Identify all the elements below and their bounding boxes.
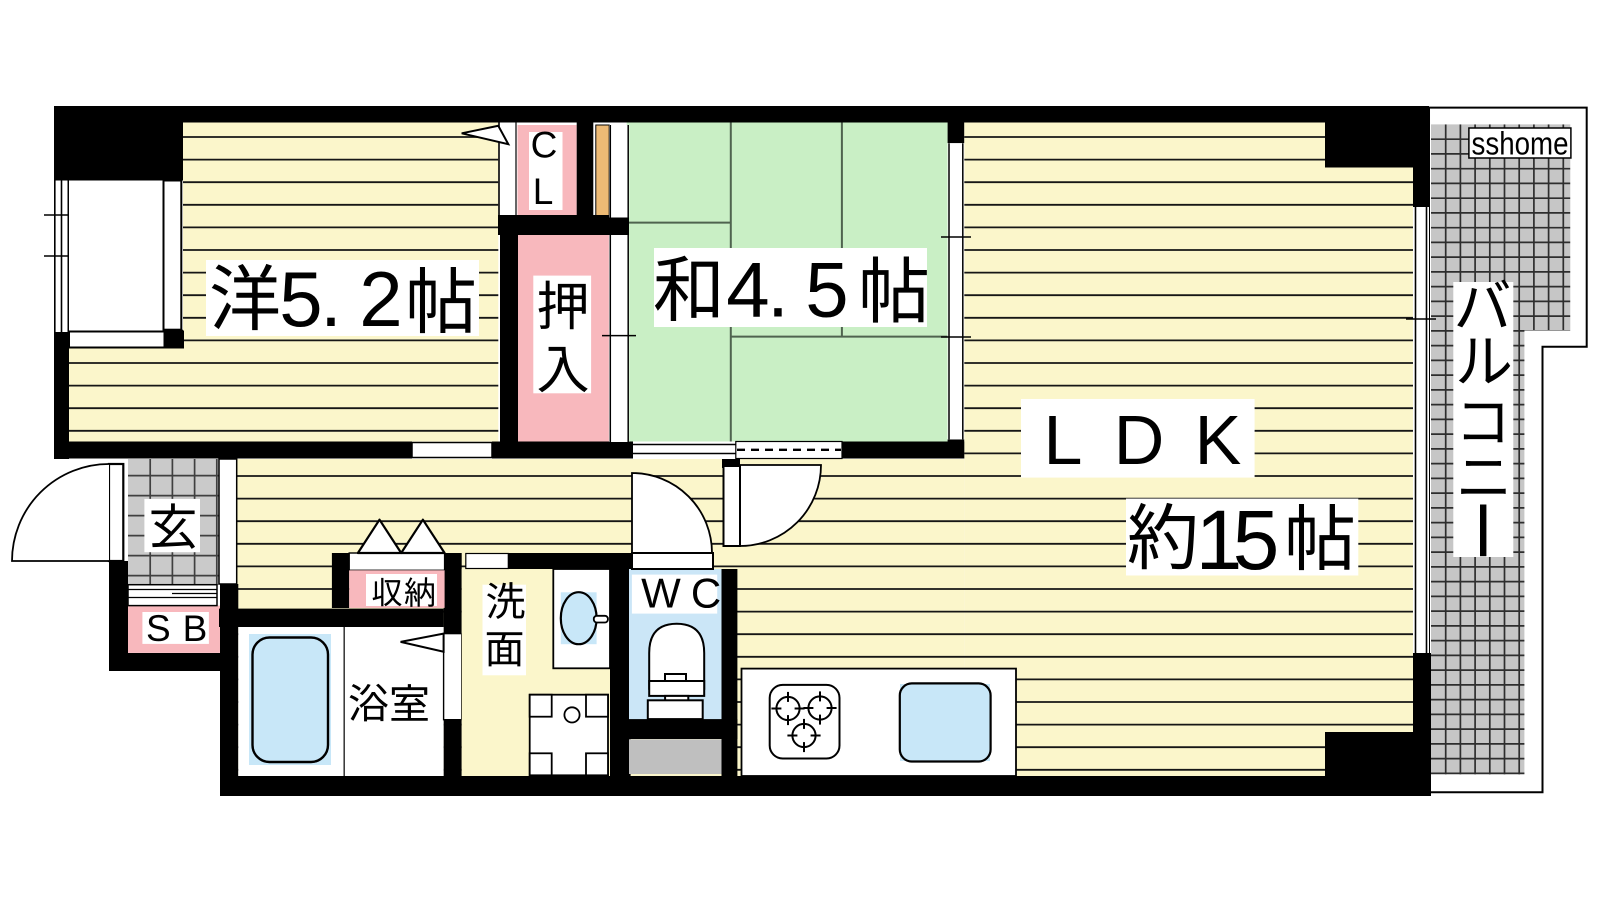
svg-text:S: S xyxy=(146,608,171,649)
svg-text:W: W xyxy=(641,570,681,617)
svg-text:C: C xyxy=(691,570,721,617)
svg-text:.: . xyxy=(320,255,342,343)
svg-text:sshome: sshome xyxy=(1472,126,1569,162)
svg-text:K: K xyxy=(1195,401,1242,479)
svg-text:5: 5 xyxy=(805,246,848,334)
svg-text:L: L xyxy=(1044,401,1083,479)
svg-text:C: C xyxy=(531,125,558,166)
svg-text:.: . xyxy=(767,246,789,334)
svg-text:D: D xyxy=(1114,401,1165,479)
svg-text:L: L xyxy=(533,171,554,212)
svg-text:B: B xyxy=(183,608,208,649)
svg-text:5: 5 xyxy=(279,255,322,343)
svg-text:4: 4 xyxy=(726,246,769,334)
svg-text:5: 5 xyxy=(1233,493,1280,587)
svg-text:2: 2 xyxy=(359,255,402,343)
